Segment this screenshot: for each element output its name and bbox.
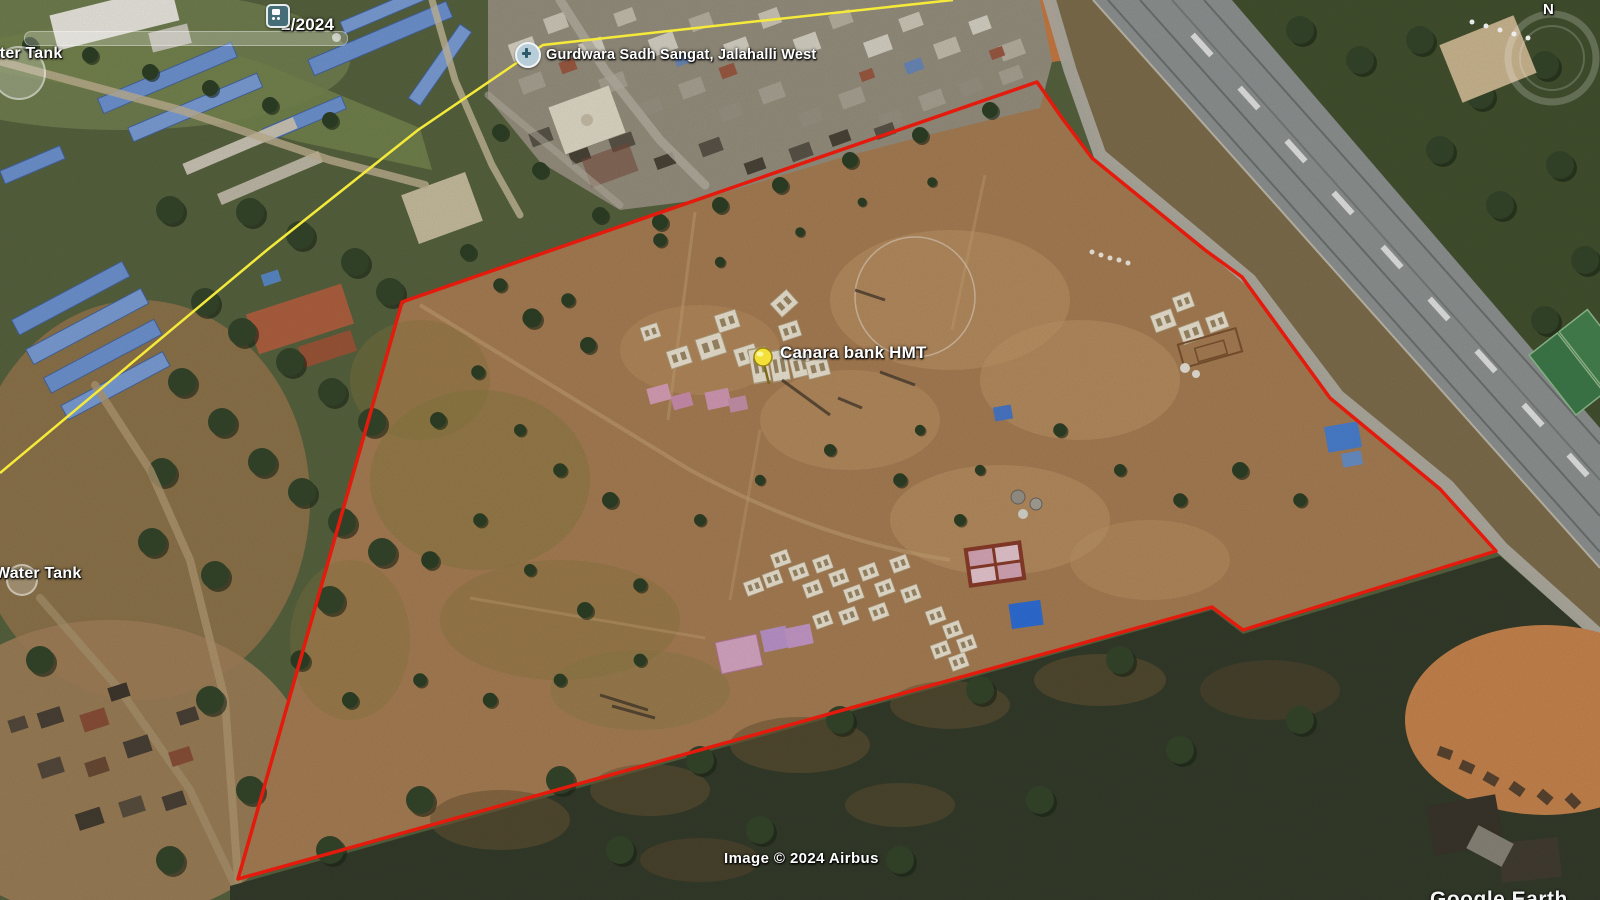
water-tank-label-top[interactable]: Water Tank xyxy=(0,45,62,63)
imagery-grain xyxy=(0,0,1600,900)
gurdwara-label[interactable]: Gurdwara Sadh Sangat, Jalahalli West xyxy=(546,47,816,63)
imagery-attribution: Image © 2024 Airbus xyxy=(724,850,879,867)
gurdwara-icon[interactable] xyxy=(515,42,541,68)
canara-bank-label[interactable]: Canara bank HMT xyxy=(780,343,927,363)
satellite-map[interactable] xyxy=(0,0,1600,900)
bus-stop-icon[interactable] xyxy=(266,4,290,28)
compass-north-label[interactable]: N xyxy=(1543,1,1554,18)
google-earth-satellite-view[interactable]: 2/2024 Water Tank Water Tank Gurdwara Sa… xyxy=(0,0,1600,900)
water-tank-label-mid[interactable]: Water Tank xyxy=(0,565,81,583)
google-earth-watermark: Google Earth xyxy=(1430,888,1568,900)
